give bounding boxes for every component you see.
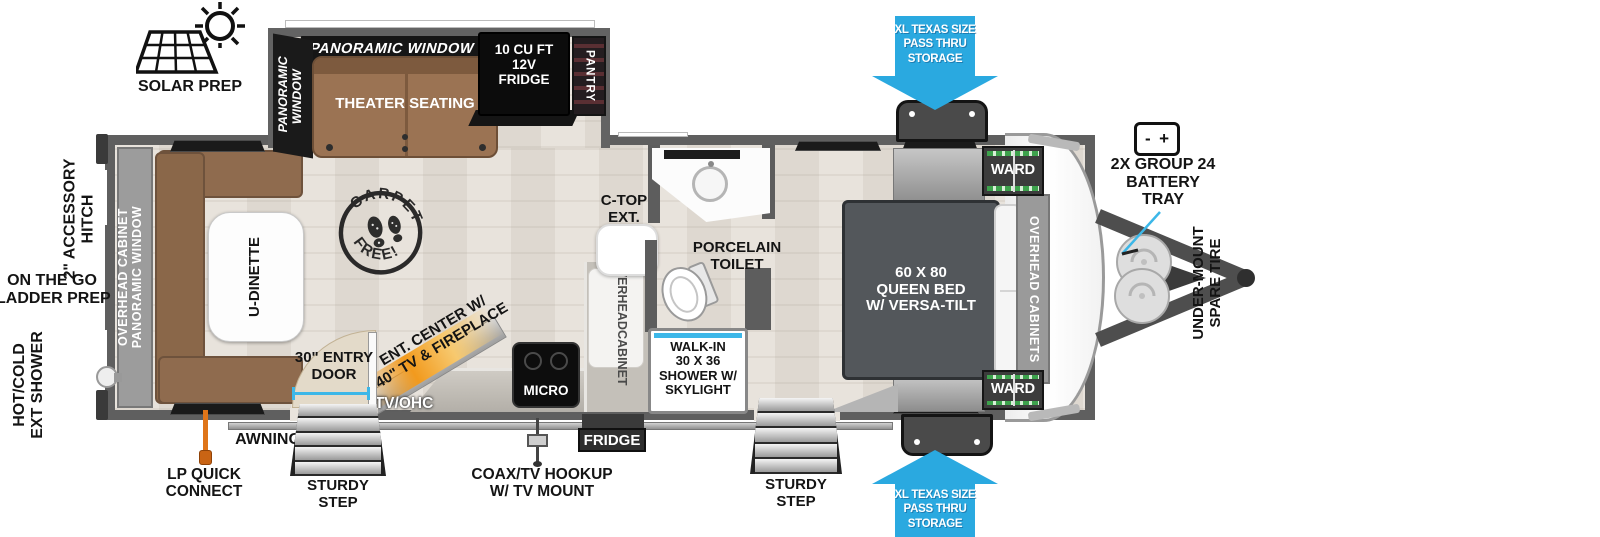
ward-label: WARD	[984, 382, 1042, 398]
pass-thru-arrow-bottom: XL TEXAS SIZE PASS THRU STORAGE	[872, 450, 998, 537]
solar-prep-icon	[136, 2, 250, 80]
tv-mount-plate	[527, 434, 548, 447]
overhead-cabinet-label: OVERHEAD CABINET	[602, 274, 640, 370]
spare-tire-label: UNDER-MOUNT SPARE TIRE	[1191, 225, 1227, 341]
skylight-bar	[654, 333, 742, 338]
wardrobe-bottom: WARD	[982, 370, 1044, 410]
door-dimension-line	[294, 392, 370, 395]
sturdy-step-label: STURDY STEP	[750, 477, 842, 510]
burner-icon	[550, 352, 568, 370]
shower-label: WALK-IN 30 X 36 SHOWER W/ SKYLIGHT	[651, 340, 745, 397]
dinette-window-top	[170, 140, 265, 152]
vanity-window	[664, 150, 740, 159]
c-top-ext-label: C-TOP EXT.	[592, 193, 656, 226]
theater-seating-label: THEATER SEATING	[314, 96, 496, 113]
rear-bumper-bottom	[96, 390, 108, 420]
queen-bed-label: 60 X 80 QUEEN BED W/ VERSA-TILT	[866, 265, 976, 315]
ext-shower-stem	[114, 373, 122, 382]
bath-wall	[745, 268, 771, 330]
entry-steps-rear	[750, 398, 842, 474]
door-dimension-tick	[367, 387, 370, 400]
bed-slide-platform-top	[893, 148, 985, 204]
microwave: MICRO	[512, 342, 580, 408]
lp-quick-connect-nozzle	[199, 450, 212, 465]
entry-steps-front	[290, 404, 386, 476]
door-dimension-tick	[292, 387, 295, 400]
pantry: PANTRY	[572, 36, 606, 116]
coax-hookup-label: COAX/TV HOOKUP W/ TV MOUNT	[462, 466, 622, 500]
rear-window-sill	[101, 170, 107, 225]
porcelain-toilet-label: PORCELAIN TOILET	[682, 240, 792, 273]
arrow-head-up	[872, 450, 998, 484]
accessory-hitch-label: 2" ACCESSORY HITCH	[62, 147, 100, 292]
dinette-window-bottom	[170, 403, 265, 415]
front-overhead-cabinets: OVERHEAD CABINETS	[1016, 194, 1050, 384]
hitch-assembly	[1086, 188, 1264, 378]
theater-seating-sofa: THEATER SEATING	[312, 56, 498, 158]
battery-icon: -+	[1134, 122, 1180, 156]
entry-door-label: 30" ENTRY DOOR	[286, 350, 382, 383]
burner-icon	[524, 352, 542, 370]
coupler-icon	[1237, 269, 1255, 287]
u-dinette-label: U-DINETTE	[247, 216, 267, 338]
panoramic-window-side-label: PANORAMIC WINDOW	[273, 33, 313, 158]
ward-label: WARD	[984, 163, 1042, 179]
faucet-icon	[708, 161, 714, 167]
bootprint-icon	[386, 214, 404, 243]
battery-tray-label: 2X GROUP 24 BATTERY TRAY	[1096, 156, 1230, 209]
lp-quick-connect-label: LP QUICK CONNECT	[156, 466, 252, 500]
rv-floorplan: SOLAR PREP OVERHEAD CABINET PANORAMIC WI…	[0, 0, 1600, 537]
screw-icon	[914, 439, 920, 445]
lp-quick-connect-icon	[203, 410, 208, 452]
fridge-label: FRIDGE	[578, 428, 646, 452]
overhead-cabinets-label: OVERHEAD CABINETS	[1018, 196, 1048, 382]
fridge-12v: 10 CU FT 12V FRIDGE	[478, 32, 570, 116]
top-wall-sill	[618, 132, 688, 137]
ext-shower-label: HOT/COLD EXT SHOWER	[11, 317, 49, 453]
slideout-sill	[285, 20, 595, 28]
rear-wall-label: OVERHEAD CABINET PANORAMIC WINDOW	[117, 152, 153, 402]
bath-wall	[645, 240, 657, 332]
shower: WALK-IN 30 X 36 SHOWER W/ SKYLIGHT	[648, 328, 748, 414]
propane-tank-icon	[1115, 269, 1169, 323]
pantry-label: PANTRY	[574, 38, 604, 114]
fridge-vent-tab	[582, 414, 644, 428]
sturdy-step-label: STURDY STEP	[292, 478, 384, 511]
micro-label: MICRO	[514, 384, 578, 399]
ladder-prep-label: ON THE GO LADDER PREP	[0, 272, 108, 307]
queen-bed: 60 X 80 QUEEN BED W/ VERSA-TILT	[842, 200, 1000, 380]
screw-icon	[969, 111, 975, 117]
bed-slide-platform-bottom	[893, 376, 985, 412]
bath-sink	[692, 166, 728, 202]
screw-icon	[909, 111, 915, 117]
pass-thru-arrow-top: XL TEXAS SIZE PASS THRU STORAGE	[872, 16, 998, 110]
solar-prep-label: SOLAR PREP	[130, 78, 250, 96]
screw-icon	[974, 439, 980, 445]
arrow-head-down	[872, 76, 998, 110]
bath-window-top	[795, 141, 881, 151]
wardrobe-top: WARD	[982, 146, 1044, 196]
dinette-seat-bottom	[158, 356, 303, 404]
